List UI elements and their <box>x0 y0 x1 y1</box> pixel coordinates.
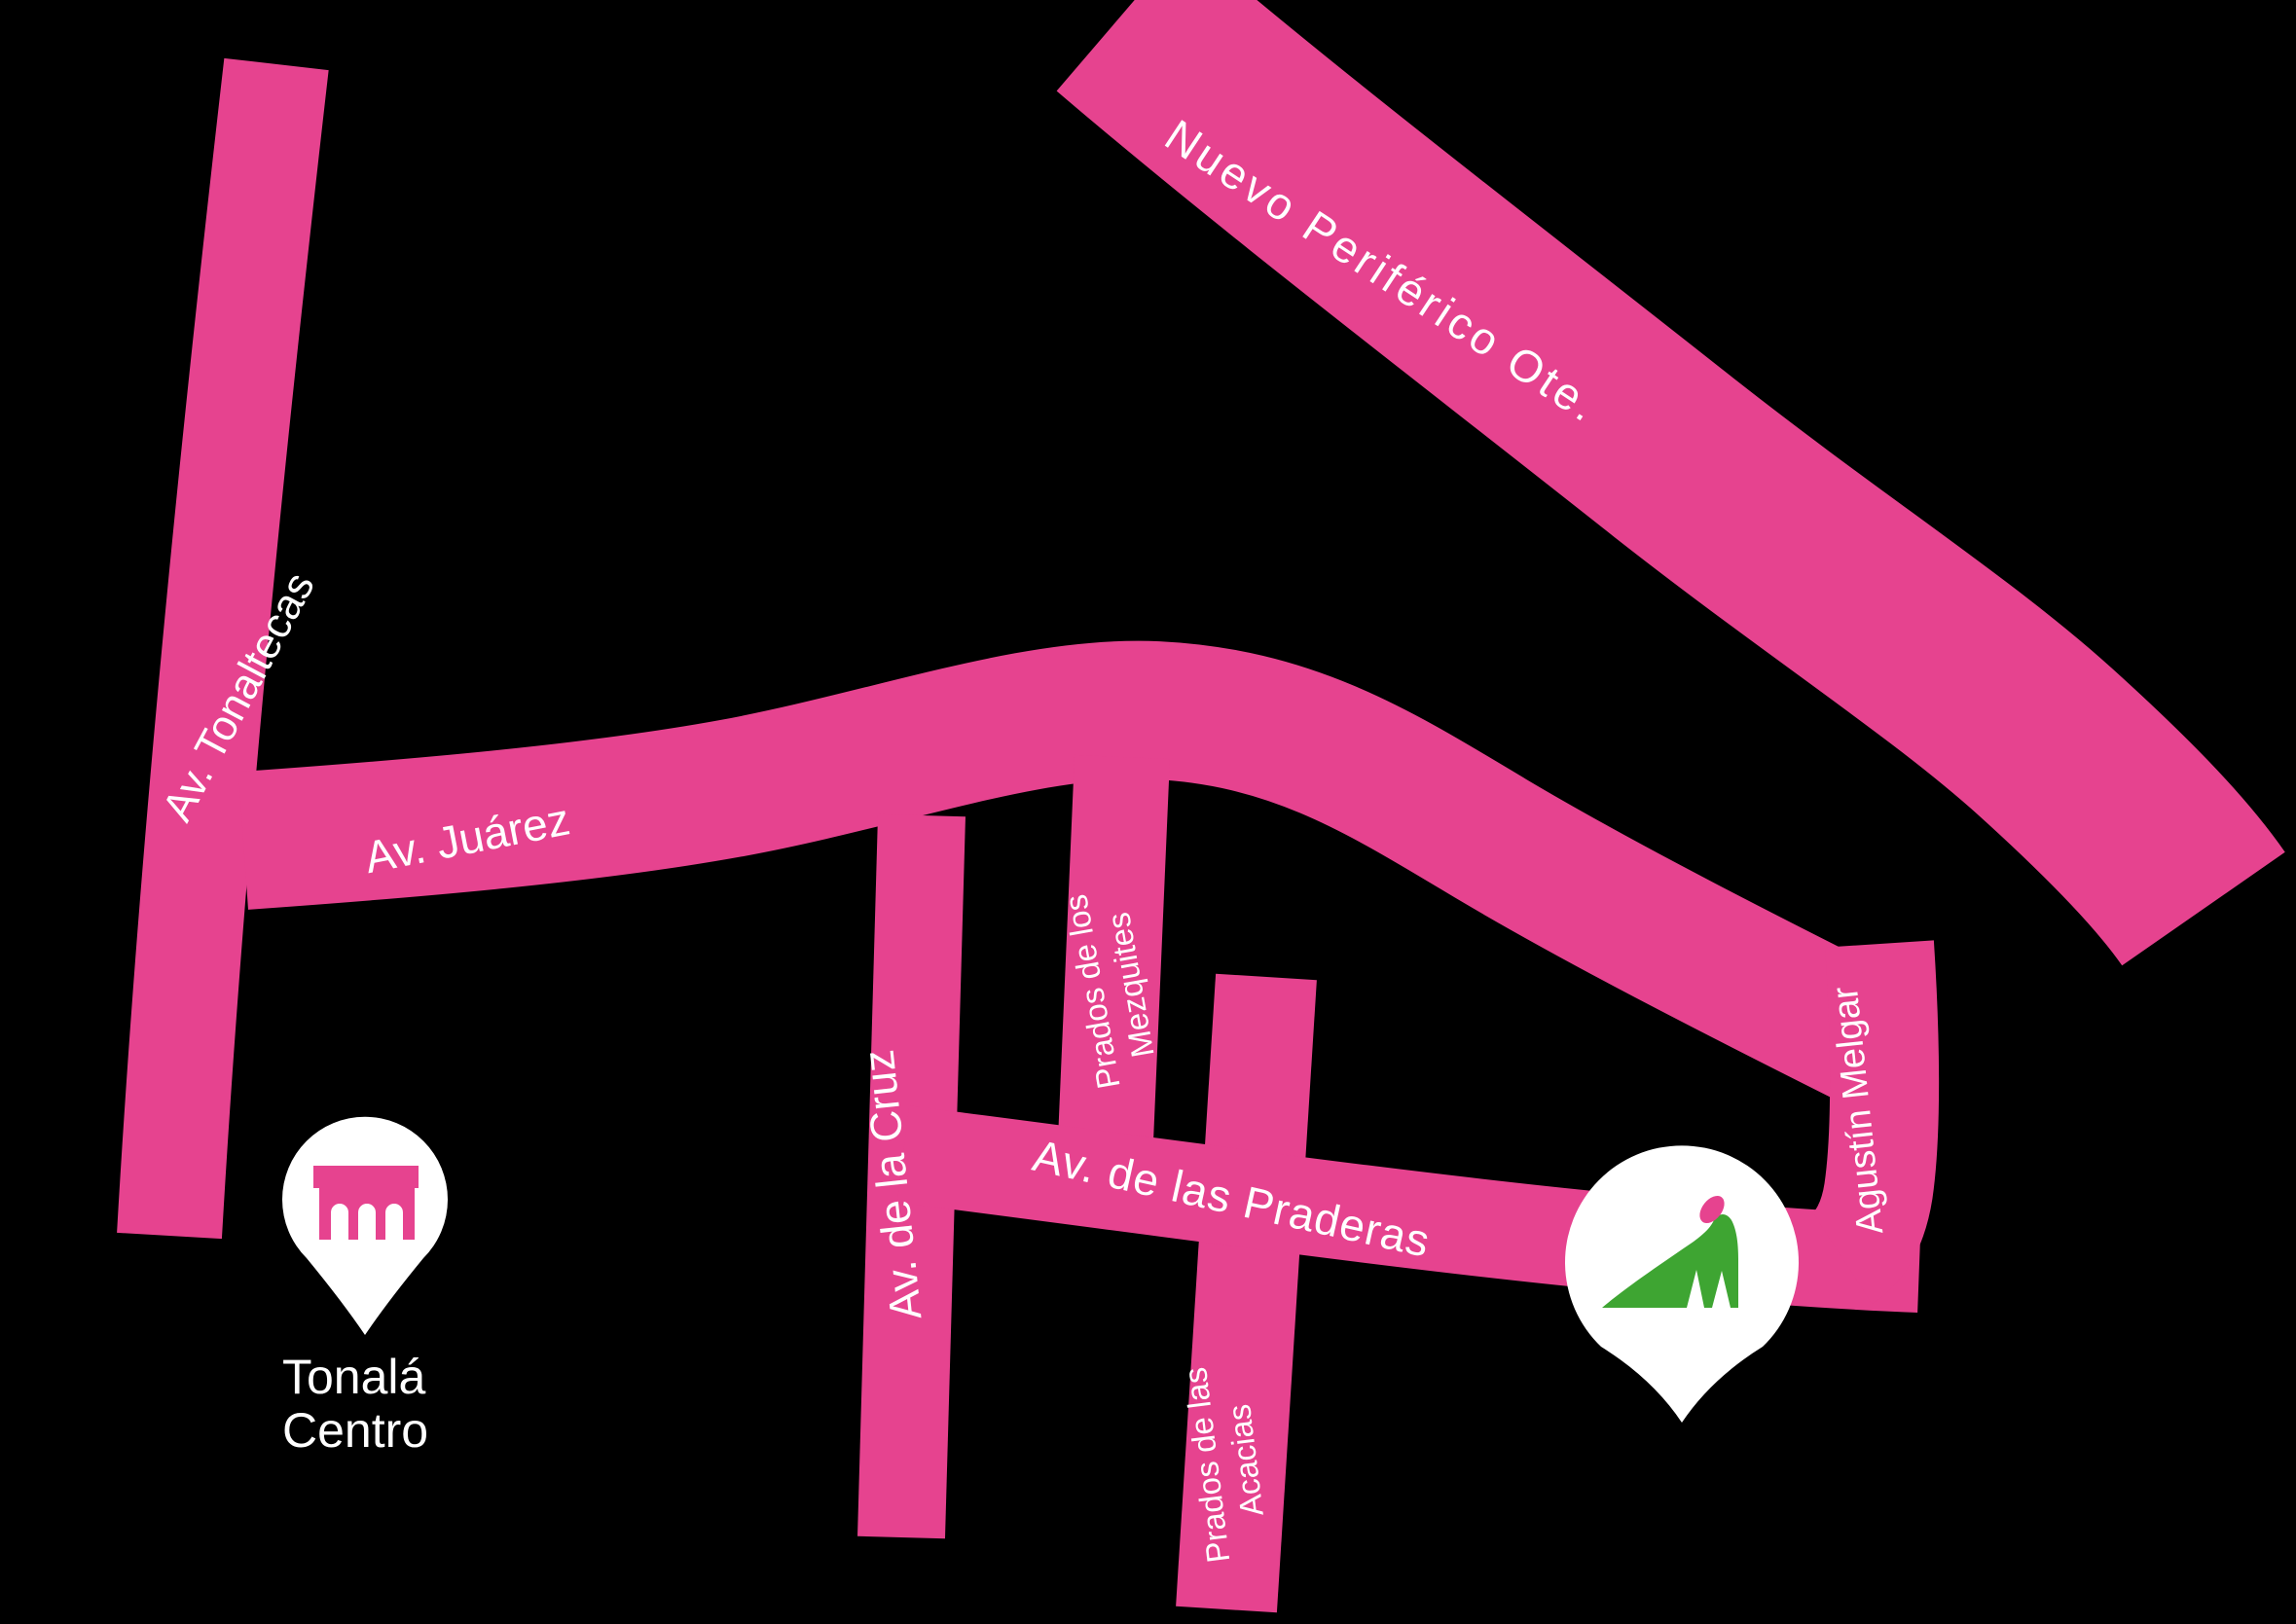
tonala-location-map: Av. Tonaltecas Av. Juárez Nuevo Periféri… <box>0 0 2296 1624</box>
bridge-icon-top-bar <box>313 1166 419 1188</box>
marker-tonala-centro-label-line2: Centro <box>282 1403 428 1458</box>
marker-tonala-centro-label-line1: Tonalá <box>282 1350 426 1404</box>
